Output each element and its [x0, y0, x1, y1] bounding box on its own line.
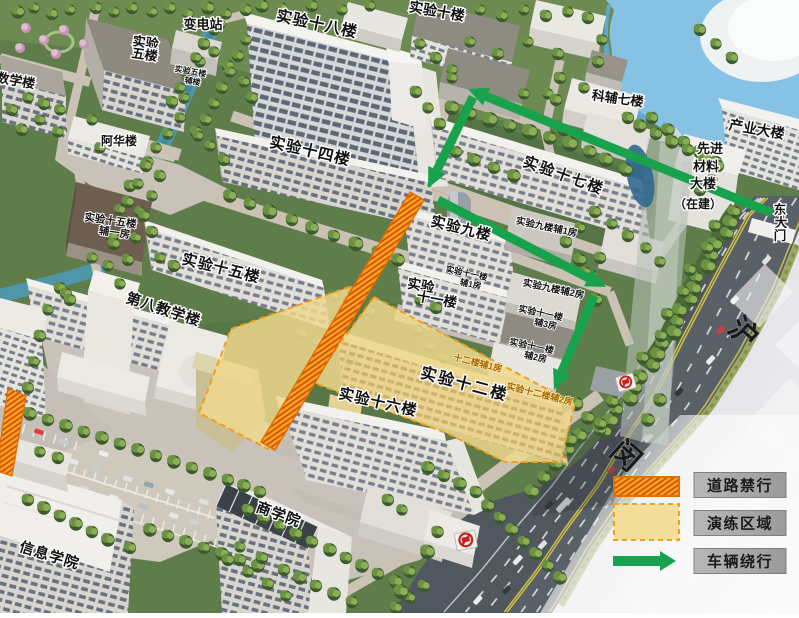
svg-text:大楼: 大楼	[690, 176, 716, 191]
svg-text:材料: 材料	[693, 159, 719, 174]
svg-text:门: 门	[774, 228, 787, 243]
svg-text:车辆绕行: 车辆绕行	[707, 553, 773, 571]
svg-text:东: 东	[774, 202, 787, 217]
svg-text:先进: 先进	[697, 141, 723, 156]
svg-text:（在建）: （在建）	[674, 196, 722, 211]
svg-text:道路禁行: 道路禁行	[707, 477, 773, 495]
svg-text:变电站: 变电站	[183, 17, 222, 32]
svg-text:大: 大	[775, 215, 788, 230]
svg-text:阿华楼: 阿华楼	[101, 133, 137, 148]
svg-text:演练区域: 演练区域	[707, 515, 773, 533]
